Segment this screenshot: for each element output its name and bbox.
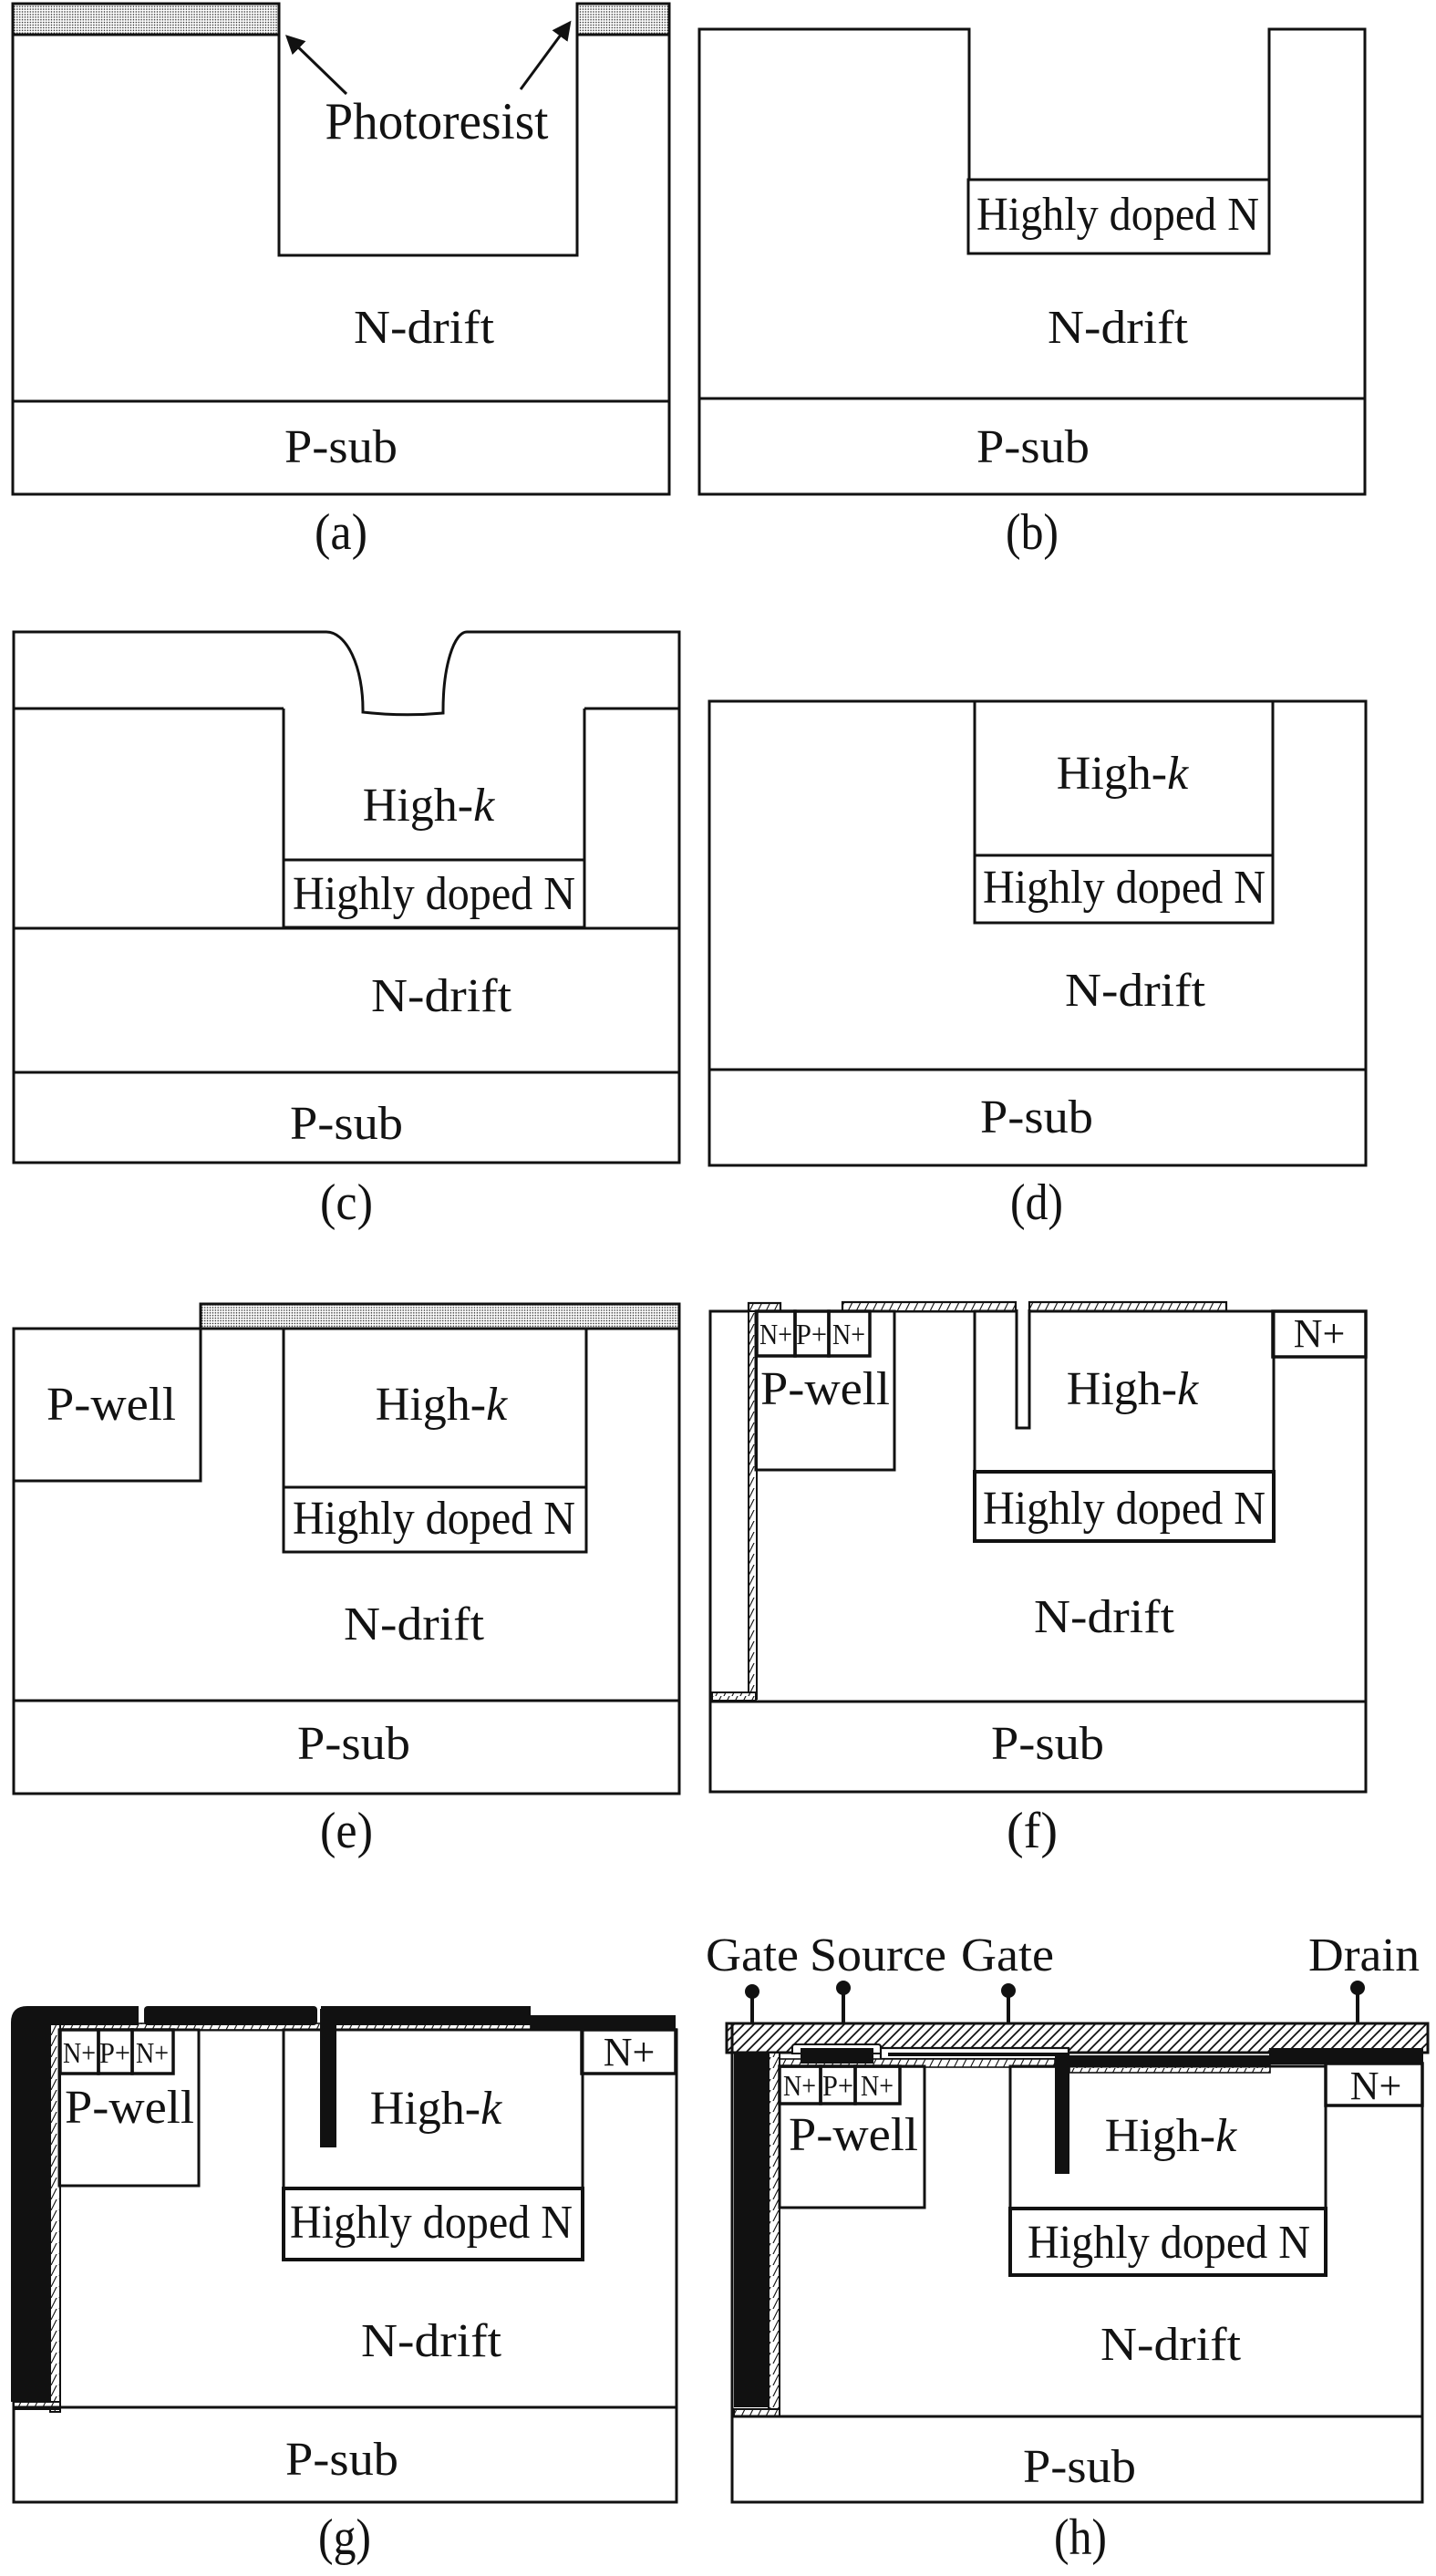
svg-text:High-k: High-k <box>370 2083 502 2135</box>
svg-text:N+: N+ <box>783 2069 816 2102</box>
svg-text:High-k: High-k <box>1105 2110 1237 2162</box>
svg-text:Highly doped N: Highly doped N <box>976 189 1259 241</box>
svg-text:P-well: P-well <box>789 2109 918 2161</box>
svg-text:High-k: High-k <box>376 1379 508 1431</box>
svg-text:Source: Source <box>810 1929 946 1981</box>
svg-text:N+: N+ <box>604 2030 656 2074</box>
svg-text:Highly doped N: Highly doped N <box>983 1483 1266 1535</box>
svg-text:N-drift: N-drift <box>1100 2319 1242 2371</box>
svg-text:Highly doped N: Highly doped N <box>293 1493 575 1545</box>
svg-text:(b): (b) <box>1006 504 1059 561</box>
svg-text:Drain: Drain <box>1308 1929 1420 1981</box>
svg-text:P-sub: P-sub <box>1023 2441 1136 2493</box>
svg-text:(h): (h) <box>1054 2509 1107 2566</box>
svg-text:P-sub: P-sub <box>976 421 1090 473</box>
svg-text:N+: N+ <box>759 1318 792 1350</box>
svg-text:Gate: Gate <box>961 1929 1054 1981</box>
svg-text:(f): (f) <box>1007 1803 1058 1859</box>
svg-text:Gate: Gate <box>706 1929 799 1981</box>
svg-text:N+: N+ <box>832 1318 865 1350</box>
svg-text:Highly doped N: Highly doped N <box>290 2197 573 2249</box>
svg-text:Highly doped N: Highly doped N <box>1028 2217 1310 2269</box>
svg-text:P-sub: P-sub <box>285 2434 398 2486</box>
svg-text:N-drift: N-drift <box>361 2315 502 2367</box>
svg-text:High-k: High-k <box>1067 1363 1199 1415</box>
svg-text:P-well: P-well <box>65 2082 194 2134</box>
svg-text:P-sub: P-sub <box>980 1091 1093 1143</box>
svg-text:N+: N+ <box>861 2069 894 2102</box>
svg-text:(g): (g) <box>318 2509 371 2566</box>
svg-text:P+: P+ <box>822 2069 853 2102</box>
svg-text:N-drift: N-drift <box>1065 965 1206 1017</box>
svg-text:N+: N+ <box>136 2036 169 2069</box>
svg-text:P+: P+ <box>99 2036 130 2069</box>
svg-text:N-drift: N-drift <box>371 970 512 1022</box>
svg-text:(c): (c) <box>320 1174 373 1231</box>
svg-text:Highly doped N: Highly doped N <box>983 862 1266 914</box>
svg-text:P-sub: P-sub <box>284 421 398 473</box>
svg-text:High-k: High-k <box>1057 748 1189 800</box>
svg-text:P-sub: P-sub <box>991 1718 1104 1770</box>
svg-text:High-k: High-k <box>363 780 495 832</box>
svg-text:N+: N+ <box>1294 1311 1346 1356</box>
svg-text:Highly doped N: Highly doped N <box>293 868 575 920</box>
svg-text:N-drift: N-drift <box>344 1598 485 1650</box>
svg-text:P-sub: P-sub <box>297 1718 410 1770</box>
svg-text:P-well: P-well <box>46 1379 176 1431</box>
svg-text:N-drift: N-drift <box>354 302 495 354</box>
svg-text:N+: N+ <box>63 2036 96 2069</box>
svg-text:P-sub: P-sub <box>290 1098 403 1150</box>
svg-text:(a): (a) <box>315 504 367 561</box>
svg-text:Photoresist: Photoresist <box>325 93 549 150</box>
svg-text:P+: P+ <box>796 1318 827 1350</box>
svg-text:P-well: P-well <box>760 1363 890 1415</box>
svg-text:(d): (d) <box>1010 1174 1063 1231</box>
svg-text:(e): (e) <box>320 1803 373 1859</box>
svg-text:N-drift: N-drift <box>1034 1591 1175 1643</box>
svg-text:N-drift: N-drift <box>1048 302 1189 354</box>
svg-text:N+: N+ <box>1350 2064 1402 2108</box>
